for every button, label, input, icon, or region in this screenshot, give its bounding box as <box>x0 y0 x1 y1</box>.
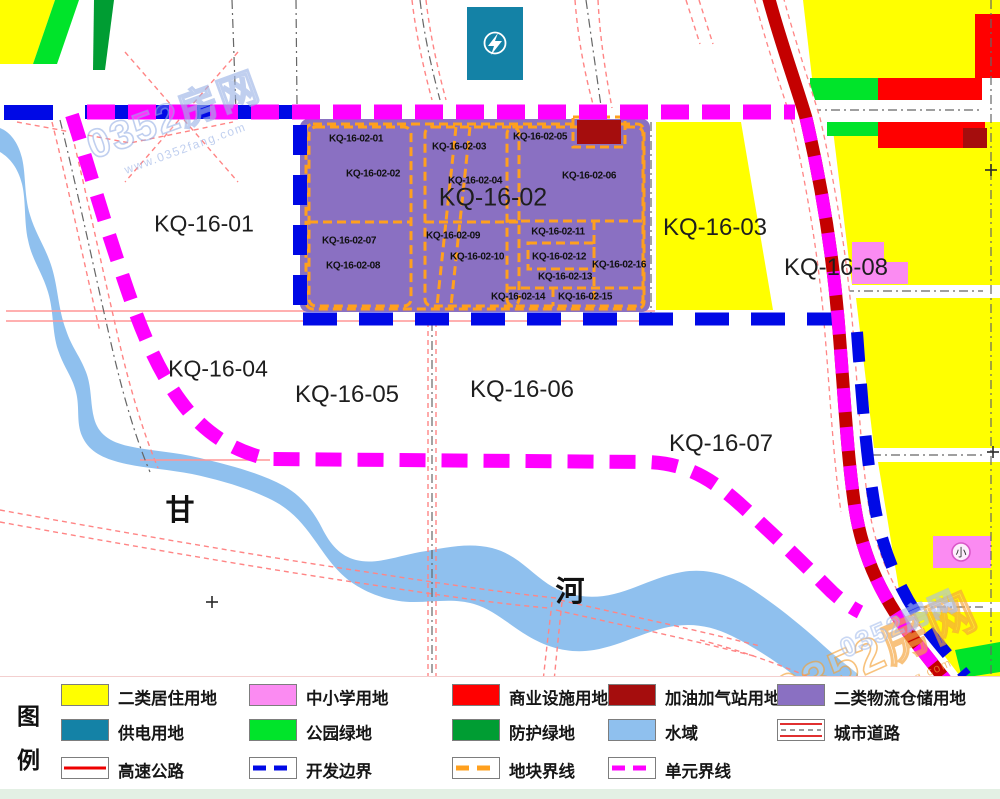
commercial-strip <box>878 78 982 100</box>
legend-label: 中小学用地 <box>306 685 389 709</box>
legend-label: 城市道路 <box>834 720 900 744</box>
legend-swatch-fill-1 <box>249 684 297 706</box>
legend-label: 供电用地 <box>118 720 184 744</box>
park-green-strip <box>827 122 878 136</box>
bottom-strip <box>0 789 1000 799</box>
planning-map-page: 小 KQ-16-01KQ-16-02KQ-16-03KQ-16-04KQ-16-… <box>0 0 1000 799</box>
legend-swatch-fill-0 <box>61 684 109 706</box>
city-road-line <box>781 729 821 731</box>
residential-zone <box>878 462 1000 602</box>
commercial-strip <box>975 14 1000 78</box>
residential-zone-kq-16-03 <box>656 122 773 310</box>
legend-label: 防护绿地 <box>509 720 575 744</box>
planning-map-canvas: 小 <box>0 0 1000 676</box>
city-road-line <box>780 723 822 725</box>
legend-swatch-fill-7 <box>452 719 500 741</box>
residential-zone <box>856 298 1000 448</box>
legend-swatch-dash-13 <box>608 757 656 779</box>
city-road-line <box>780 735 822 737</box>
legend-label: 公园绿地 <box>306 720 372 744</box>
school-icon-char: 小 <box>956 546 967 559</box>
legend-swatch-dash-12 <box>452 757 500 779</box>
legend-swatch-fill-4 <box>777 684 825 706</box>
legend-swatch-dash-11 <box>249 757 297 779</box>
gas-station-zone <box>963 128 987 148</box>
legend-title-char-0: 图 <box>17 697 40 731</box>
legend-label: 商业设施用地 <box>509 685 608 709</box>
legend-swatch-highway-10 <box>61 757 109 779</box>
dash-line <box>253 766 293 771</box>
protective-green-strip <box>93 0 114 70</box>
highway-line <box>64 767 106 770</box>
legend-label: 地块界线 <box>509 758 575 782</box>
legend-label: 高速公路 <box>118 758 184 782</box>
legend: 图例 二类居住用地中小学用地商业设施用地加油加气站用地二类物流仓储用地供电用地公… <box>0 676 1000 790</box>
logistics-zone <box>300 119 650 312</box>
legend-label: 开发边界 <box>306 758 372 782</box>
legend-swatch-fill-3 <box>608 684 656 706</box>
legend-swatch-fill-2 <box>452 684 500 706</box>
legend-label: 加油加气站用地 <box>665 685 781 709</box>
dash-line <box>456 766 496 771</box>
legend-label: 二类物流仓储用地 <box>834 685 966 709</box>
legend-swatch-fill-6 <box>249 719 297 741</box>
legend-title-char-1: 例 <box>17 741 40 775</box>
school-icon: 小 <box>952 543 970 561</box>
legend-label: 单元界线 <box>665 758 731 782</box>
legend-label: 二类居住用地 <box>118 685 217 709</box>
legend-label: 水域 <box>665 720 698 744</box>
gas-station-zone <box>577 120 621 144</box>
legend-swatch-city-road-9 <box>777 719 825 741</box>
legend-swatch-fill-5 <box>61 719 109 741</box>
power-substation <box>467 7 523 80</box>
dash-line <box>612 766 652 771</box>
legend-swatch-fill-8 <box>608 719 656 741</box>
residential-zone <box>803 0 1000 78</box>
park-green-strip <box>810 78 878 100</box>
